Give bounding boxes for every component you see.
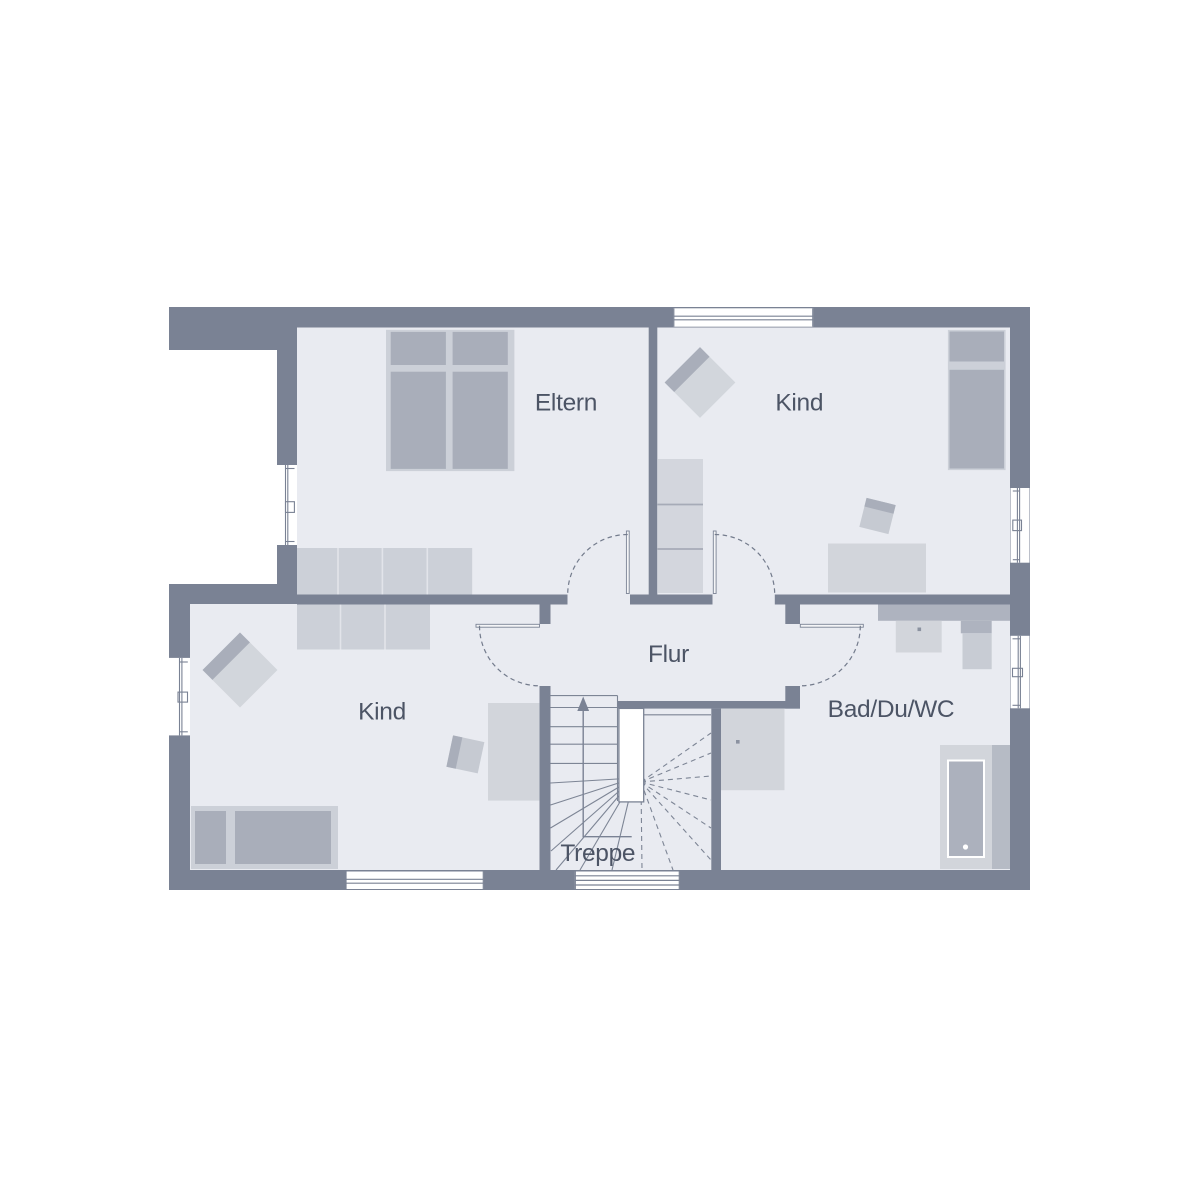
svg-text:Eltern: Eltern xyxy=(535,390,597,417)
svg-text:Flur: Flur xyxy=(648,641,689,668)
svg-text:Treppe: Treppe xyxy=(560,840,635,867)
svg-text:Kind: Kind xyxy=(775,390,823,417)
svg-text:Kind: Kind xyxy=(358,699,406,726)
svg-text:Bad/Du/WC: Bad/Du/WC xyxy=(828,696,955,723)
